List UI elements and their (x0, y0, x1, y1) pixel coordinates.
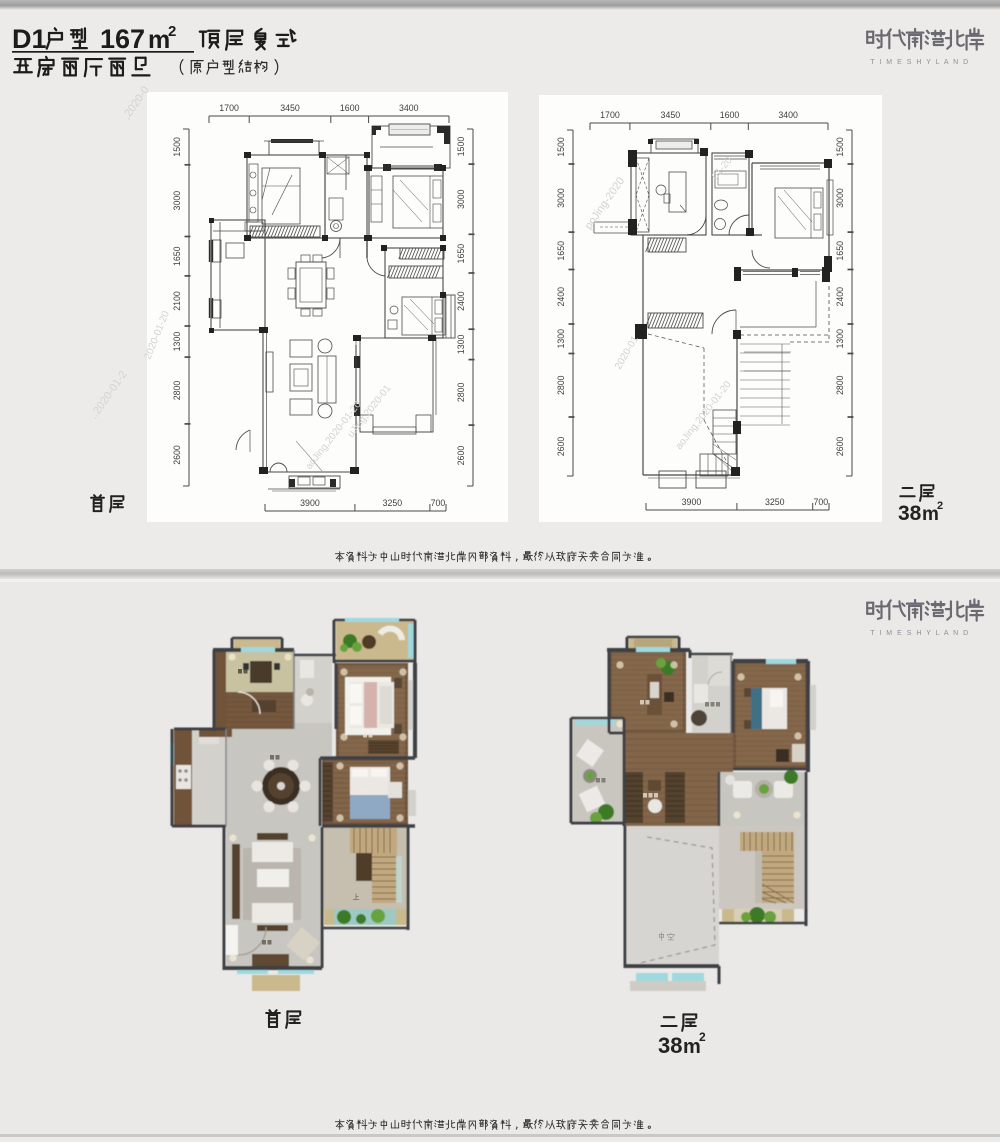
svg-text:3900: 3900 (682, 497, 702, 507)
svg-text:2800: 2800 (172, 381, 182, 401)
svg-text:3400: 3400 (778, 110, 798, 120)
svg-text:1500: 1500 (556, 137, 566, 157)
svg-text:3000: 3000 (456, 189, 466, 209)
svg-text:1300: 1300 (172, 332, 182, 352)
svg-text:3900: 3900 (300, 498, 320, 508)
svg-text:700: 700 (814, 497, 829, 507)
svg-text:2: 2 (699, 1030, 706, 1044)
svg-text:3250: 3250 (383, 498, 403, 508)
svg-text:700: 700 (431, 498, 446, 508)
svg-text:2400: 2400 (556, 287, 566, 307)
svg-text:1650: 1650 (456, 244, 466, 264)
svg-text:2800: 2800 (556, 375, 566, 395)
svg-text:1700: 1700 (219, 103, 239, 113)
svg-text:3450: 3450 (661, 110, 681, 120)
svg-text:1500: 1500 (835, 137, 845, 157)
svg-text:2: 2 (168, 23, 176, 40)
svg-text:3250: 3250 (765, 497, 785, 507)
svg-text:3000: 3000 (556, 188, 566, 208)
svg-text:1300: 1300 (556, 329, 566, 349)
svg-text:1300: 1300 (456, 335, 466, 355)
svg-text:1500: 1500 (172, 137, 182, 157)
svg-text:1500: 1500 (456, 137, 466, 157)
svg-text:167: 167 (100, 24, 145, 54)
svg-text:38: 38 (658, 1033, 682, 1058)
svg-text:2400: 2400 (835, 287, 845, 307)
svg-text:1650: 1650 (556, 241, 566, 261)
svg-text:1300: 1300 (835, 329, 845, 349)
svg-text:m: m (148, 26, 170, 54)
svg-text:2800: 2800 (835, 375, 845, 395)
svg-text:1650: 1650 (835, 241, 845, 261)
svg-text:2800: 2800 (456, 382, 466, 402)
svg-text:2600: 2600 (172, 445, 182, 465)
svg-text:2600: 2600 (456, 446, 466, 466)
svg-text:2400: 2400 (456, 291, 466, 311)
svg-text:1600: 1600 (340, 103, 360, 113)
svg-text:3000: 3000 (172, 191, 182, 211)
svg-text:2: 2 (937, 500, 943, 512)
svg-text:3000: 3000 (835, 188, 845, 208)
svg-text:1650: 1650 (172, 246, 182, 266)
svg-text:1600: 1600 (720, 110, 740, 120)
svg-text:T I M E S H Y L A N D: T I M E S H Y L A N D (870, 59, 969, 66)
svg-text:3400: 3400 (399, 103, 419, 113)
svg-text:1700: 1700 (600, 110, 620, 120)
svg-text:T I M E S H Y L A N D: T I M E S H Y L A N D (870, 630, 969, 637)
svg-text:38: 38 (898, 502, 922, 525)
svg-text:2100: 2100 (172, 291, 182, 311)
svg-text:D1: D1 (12, 24, 47, 54)
svg-text:2600: 2600 (835, 437, 845, 457)
svg-text:3450: 3450 (280, 103, 300, 113)
svg-text:2600: 2600 (556, 437, 566, 457)
